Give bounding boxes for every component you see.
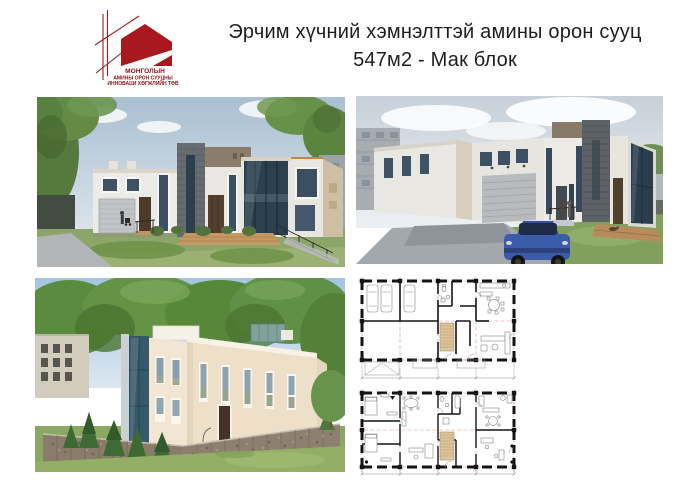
dimensions <box>361 469 516 476</box>
garage-cars <box>367 285 415 312</box>
title-line-1: Эрчим хүчний хэмнэлттэй амины орон сууц <box>185 18 685 46</box>
render-rear-view-image <box>35 278 345 472</box>
glass-tower <box>129 336 149 444</box>
side-wall <box>323 159 343 237</box>
stone-tower <box>582 120 610 222</box>
right-rooms-furniture <box>479 395 514 464</box>
garage-door <box>482 173 536 223</box>
background-building <box>35 334 89 398</box>
kitchen-dining <box>480 283 510 314</box>
bedroom-furniture <box>365 394 397 464</box>
hedge <box>37 195 75 231</box>
bathroom-fixtures <box>441 285 450 303</box>
logo-house-shape <box>121 24 172 66</box>
org-name-line1: МОНГОЛЫН <box>125 68 165 75</box>
living-room <box>481 332 510 354</box>
stone-tower <box>177 143 205 237</box>
org-logo-graphic: МОНГОЛЫН АМИНЫ ОРОН СУУЦНЫ ИННОВАЦИ ХӨГЖ… <box>93 9 181 85</box>
wood-door <box>613 178 623 224</box>
title-line-2: 547м2 - Мак блок <box>185 46 685 74</box>
staircase <box>440 432 454 460</box>
page: { "header": { "title_line1": "Эрчим хүчн… <box>0 0 700 494</box>
entry-door <box>139 197 151 233</box>
glass-tower-frame <box>121 334 129 446</box>
deck-steps <box>177 233 281 245</box>
glass-corner <box>628 140 656 228</box>
floor-plan-second-floor <box>357 388 521 480</box>
render-street-view-image <box>356 96 663 264</box>
render-front-view-image <box>37 97 345 267</box>
roof-penthouse <box>552 122 586 138</box>
page-title: Эрчим хүчний хэмнэлттэй амины орон сууц … <box>185 18 685 74</box>
floor-plan-first-floor <box>357 276 521 382</box>
staircase <box>440 323 454 351</box>
floor-plans <box>357 276 523 480</box>
porch-and-dimensions <box>361 360 516 380</box>
glass-facade <box>241 157 291 237</box>
family-room-furniture <box>402 396 433 459</box>
garage-door <box>99 199 135 233</box>
bathroom-fixtures <box>440 396 460 424</box>
header: МОНГОЛЫН АМИНЫ ОРОН СУУЦНЫ ИННОВАЦИ ХӨГЖ… <box>0 0 700 95</box>
org-logo: МОНГОЛЫН АМИНЫ ОРОН СУУЦНЫ ИННОВАЦИ ХӨГЖ… <box>93 9 181 85</box>
